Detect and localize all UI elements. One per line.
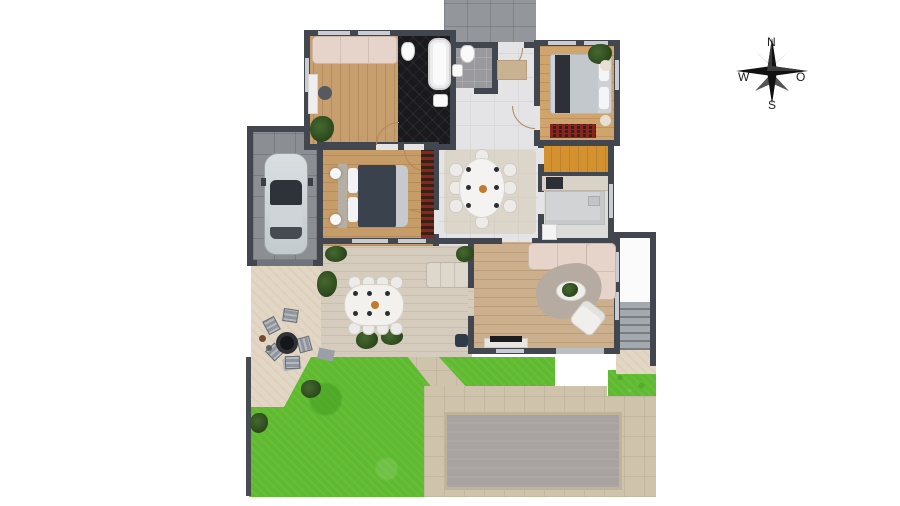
door-opening (468, 288, 474, 316)
place-setting-icon (494, 167, 499, 172)
wine-dresser (550, 124, 596, 138)
place-setting-icon (385, 291, 390, 296)
grill-icon (455, 334, 468, 347)
nightstand-lamp-icon (330, 168, 341, 179)
place-setting-icon (385, 311, 390, 316)
car-mirror (261, 178, 266, 186)
dining-chair (503, 199, 517, 213)
bathtub (428, 38, 451, 90)
window (398, 239, 426, 243)
lounge-chair (262, 316, 281, 335)
office-sofa (312, 36, 398, 64)
car-mirror (308, 178, 313, 186)
dining-chair (503, 181, 517, 195)
compass-rose: N W O S (720, 30, 824, 116)
place-setting-icon (353, 291, 358, 296)
bathroom-sink (433, 94, 448, 107)
pouf-icon (600, 60, 611, 71)
floor-plan-canvas: N W O S (0, 0, 900, 506)
place-setting-icon (466, 167, 471, 172)
outdoor-table (344, 284, 404, 326)
wall (534, 40, 540, 146)
lounge-chair (296, 336, 312, 354)
car-icon (264, 153, 308, 255)
bed-pillow (599, 87, 609, 109)
wine-shelf (421, 150, 434, 238)
wc-sink (452, 64, 463, 77)
covered-pool (444, 412, 622, 490)
garage-door (257, 260, 313, 266)
office-desk (308, 74, 318, 114)
window (318, 31, 350, 35)
window (352, 239, 388, 243)
toilet-icon (401, 42, 415, 61)
wall (614, 40, 620, 146)
bed-pillow (348, 197, 358, 222)
place-setting-icon (466, 185, 471, 190)
car-roof (270, 205, 302, 227)
place-setting-icon (494, 203, 499, 208)
place-setting-icon (466, 203, 471, 208)
place-setting-icon (494, 185, 499, 190)
compass-label-west: W (738, 70, 749, 84)
island-sink-icon (588, 196, 600, 206)
planter-pot-icon (266, 345, 272, 351)
compass-label-east: O (796, 70, 805, 84)
stove-icon (546, 177, 563, 189)
place-setting-icon (367, 311, 372, 316)
window (358, 31, 390, 35)
wall (317, 238, 475, 244)
desk-chair (318, 86, 332, 100)
outdoor-sofa (426, 262, 470, 288)
master-bed (338, 164, 408, 228)
bed-foot-blanket (396, 165, 408, 227)
bed-pillow (348, 168, 358, 193)
car-windshield (270, 180, 302, 205)
compass-label-north: N (767, 35, 776, 49)
window (609, 184, 613, 218)
place-setting-icon (353, 311, 358, 316)
center-bowl-icon (371, 301, 379, 309)
bed-duvet (358, 165, 396, 227)
door-opening (456, 88, 474, 94)
bed-duvet (570, 55, 598, 113)
fire-pit-lounge (254, 304, 318, 374)
lounge-chair (282, 308, 299, 323)
tv-icon (490, 336, 522, 342)
fire-pit-icon (276, 332, 298, 354)
pouf-icon (600, 115, 611, 126)
bed-throw (555, 55, 570, 113)
wall (468, 238, 502, 244)
window (496, 349, 524, 353)
compass-label-south: S (768, 98, 776, 112)
door-opening (538, 148, 544, 164)
window (548, 41, 576, 45)
car-rear-window (270, 227, 302, 239)
sliding-glass-door (556, 348, 604, 354)
dining-table (459, 158, 505, 218)
side-porch-floor (618, 238, 650, 304)
place-setting-icon (367, 291, 372, 296)
garage-wall-left (247, 126, 253, 266)
center-bowl-icon (479, 185, 487, 193)
lounge-chair (285, 356, 300, 370)
outdoor-dining-set (340, 272, 406, 338)
toilet-icon (460, 45, 475, 63)
planter-pot-icon (259, 335, 266, 342)
doormat (497, 60, 527, 80)
dining-chair (503, 163, 517, 177)
window (615, 60, 619, 90)
door-opening (538, 192, 544, 214)
exterior-stairs (618, 302, 650, 350)
fridge-icon (542, 224, 557, 240)
nightstand-lamp-icon (330, 214, 341, 225)
wall (650, 232, 656, 366)
